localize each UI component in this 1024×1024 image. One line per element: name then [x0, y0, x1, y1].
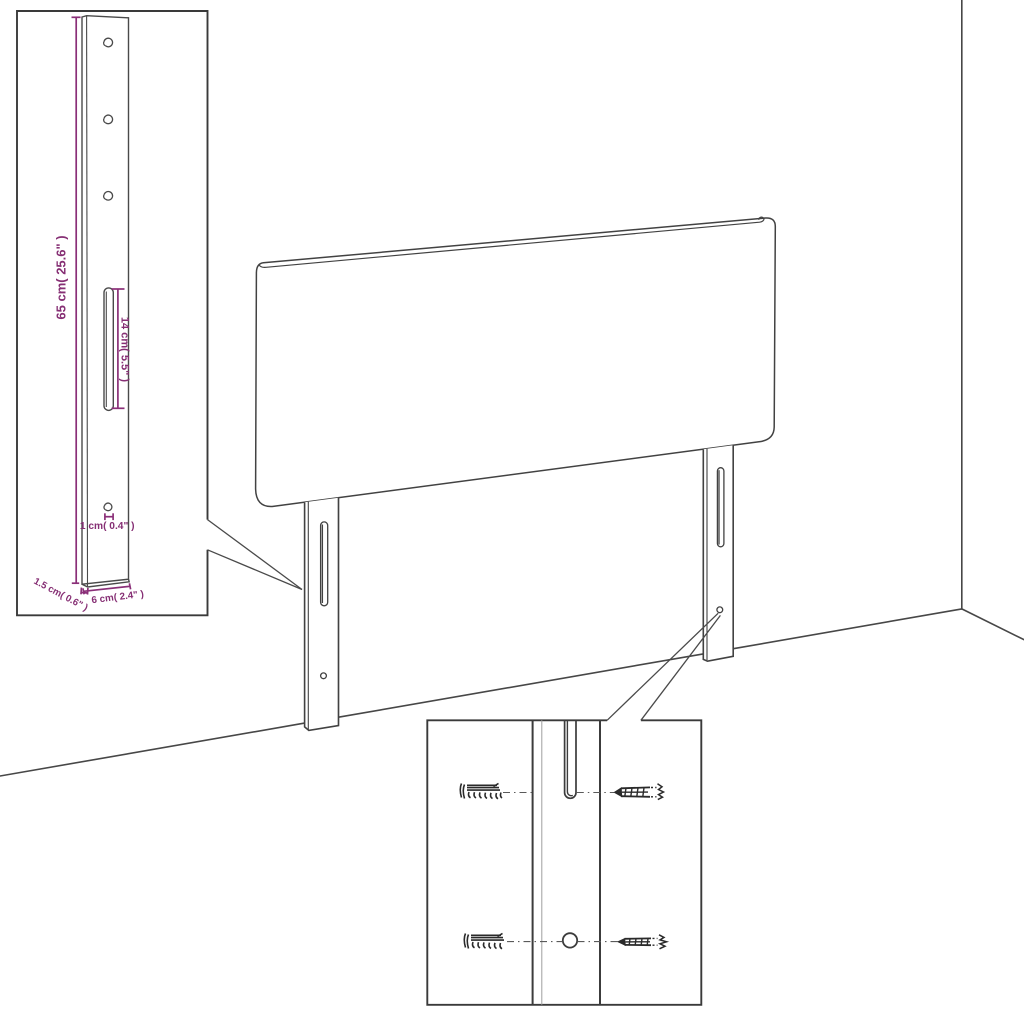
svg-text:1 cm( 0.4" ): 1 cm( 0.4" )	[80, 521, 135, 532]
svg-text:14 cm( 5.5" ): 14 cm( 5.5" )	[119, 317, 131, 382]
svg-text:65 cm( 25.6" ): 65 cm( 25.6" )	[53, 235, 68, 319]
